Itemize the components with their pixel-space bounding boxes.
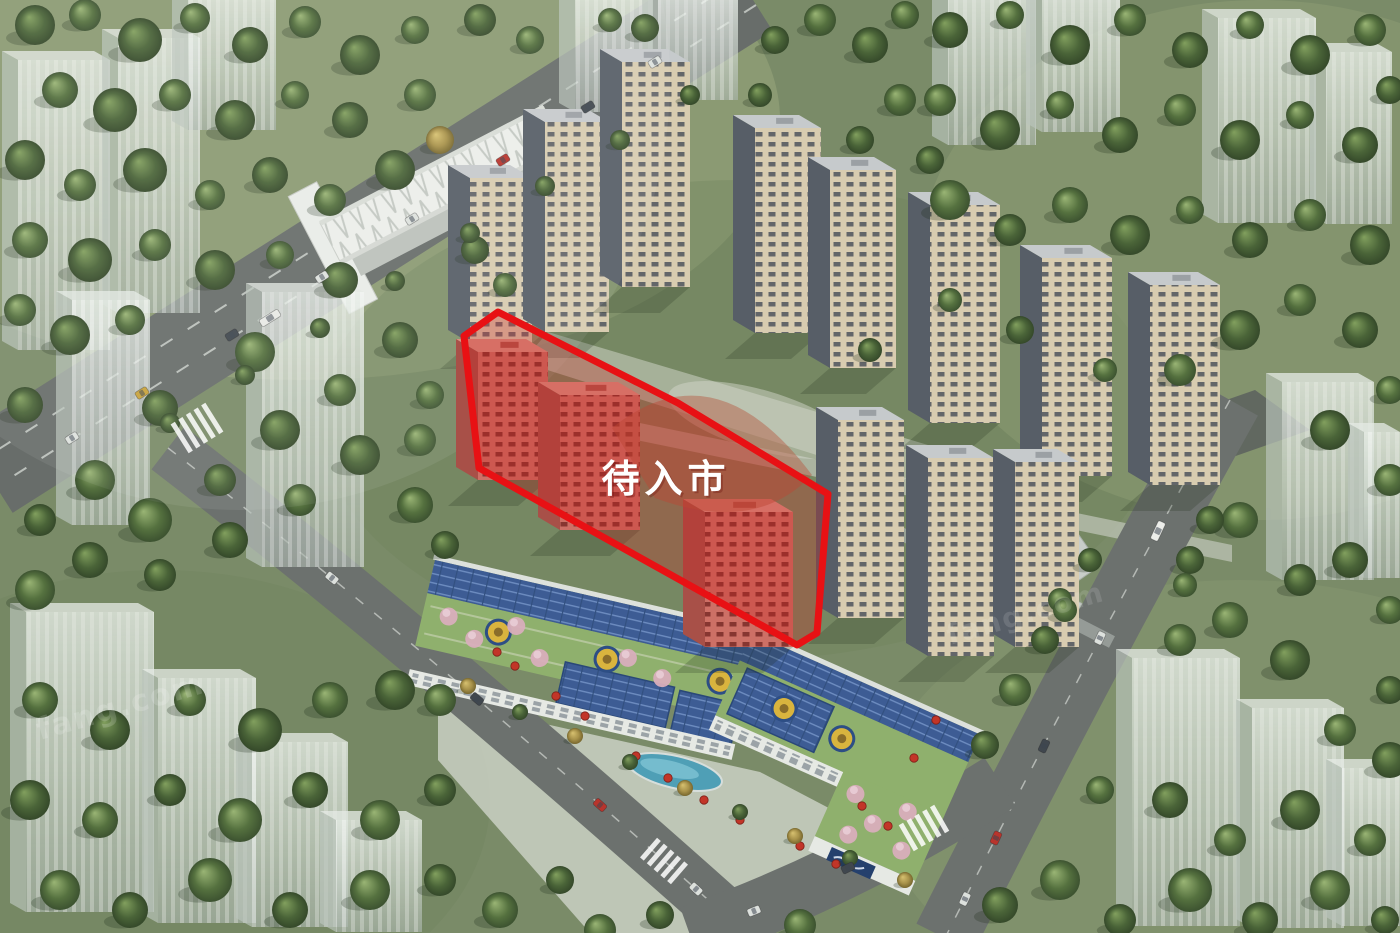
red-umbrella xyxy=(581,712,589,720)
red-umbrella xyxy=(932,716,940,724)
residential-tower xyxy=(1120,272,1220,511)
residential-tower xyxy=(725,115,821,359)
red-umbrella xyxy=(700,796,708,804)
red-umbrella xyxy=(910,754,918,762)
ghost-building xyxy=(1026,0,1120,132)
red-umbrella xyxy=(664,774,672,782)
residential-tower xyxy=(800,157,896,394)
red-umbrella xyxy=(884,822,892,830)
residential-tower xyxy=(900,192,1000,449)
pending-launch-label: 待入市 xyxy=(601,457,730,501)
scene-canvas: 待入市 待入市 fang.com fang.com xyxy=(0,0,1400,933)
aerial-rendering: 待入市 待入市 fang.com fang.com xyxy=(0,0,1400,933)
ghost-building xyxy=(10,603,154,912)
red-umbrella xyxy=(858,802,866,810)
red-umbrella xyxy=(511,662,519,670)
residential-tower xyxy=(898,445,994,682)
red-umbrella xyxy=(493,648,501,656)
red-umbrella xyxy=(552,692,560,700)
